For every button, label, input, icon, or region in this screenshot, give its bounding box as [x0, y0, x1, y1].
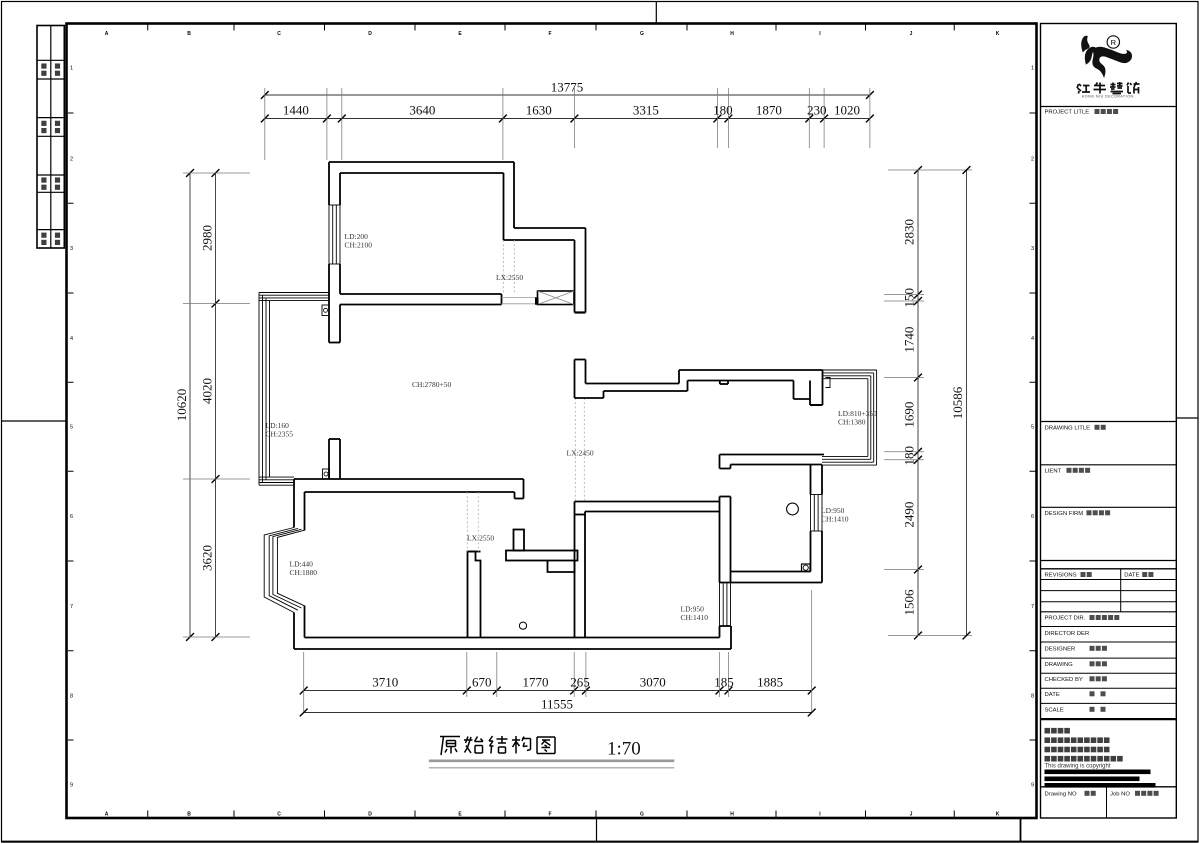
- svg-text:7: 7: [1031, 604, 1034, 610]
- svg-text:CH:1380: CH:1380: [838, 418, 866, 427]
- svg-text:H: H: [730, 31, 734, 37]
- svg-text:K: K: [996, 31, 1000, 37]
- svg-text:1506: 1506: [902, 589, 917, 616]
- svg-text:LX:2550: LX:2550: [496, 273, 523, 282]
- svg-text:3070: 3070: [640, 675, 666, 690]
- svg-text:HONG NIU DECORATION: HONG NIU DECORATION: [1082, 95, 1134, 99]
- svg-text:4: 4: [70, 336, 73, 342]
- svg-text:F: F: [548, 812, 551, 818]
- svg-text:9: 9: [70, 783, 73, 789]
- svg-text:G: G: [640, 812, 644, 818]
- svg-text:G: G: [640, 31, 644, 37]
- svg-text:1770: 1770: [523, 675, 549, 690]
- svg-text:DESIGNER: DESIGNER: [1045, 646, 1076, 652]
- svg-text:2: 2: [1031, 157, 1034, 163]
- svg-text:K: K: [996, 812, 1000, 818]
- svg-text:10620: 10620: [174, 389, 189, 422]
- svg-text:5: 5: [70, 425, 73, 431]
- svg-text:REVISIONS: REVISIONS: [1045, 573, 1077, 579]
- svg-text:Job NO: Job NO: [1110, 791, 1130, 797]
- svg-text:185: 185: [714, 675, 734, 690]
- svg-text:180: 180: [902, 446, 917, 466]
- svg-text:6: 6: [70, 514, 73, 520]
- svg-text:A: A: [105, 31, 109, 37]
- svg-text:2490: 2490: [902, 502, 917, 528]
- svg-text:1:70: 1:70: [607, 739, 641, 760]
- svg-text:C: C: [277, 31, 281, 37]
- svg-text:C: C: [277, 812, 281, 818]
- svg-text:1870: 1870: [756, 103, 782, 118]
- svg-text:1740: 1740: [902, 327, 917, 353]
- svg-text:SCALE: SCALE: [1045, 707, 1064, 713]
- svg-text:B: B: [187, 812, 191, 818]
- svg-text:11555: 11555: [541, 697, 573, 712]
- svg-text:3: 3: [1031, 246, 1034, 252]
- svg-text:LIENT: LIENT: [1045, 468, 1062, 474]
- svg-text:8: 8: [70, 694, 73, 700]
- svg-text:9: 9: [1031, 783, 1034, 789]
- svg-text:F: F: [548, 31, 551, 37]
- svg-text:J: J: [910, 31, 913, 37]
- svg-text:CH:2780+50: CH:2780+50: [412, 380, 451, 389]
- svg-text:DATE: DATE: [1045, 692, 1060, 698]
- svg-text:13775: 13775: [551, 80, 584, 95]
- svg-text:DRAWING: DRAWING: [1045, 662, 1074, 668]
- svg-text:CH:2100: CH:2100: [345, 241, 373, 250]
- svg-text:DATE: DATE: [1124, 573, 1139, 579]
- svg-text:CH:1880: CH:1880: [290, 568, 318, 577]
- svg-text:4020: 4020: [200, 378, 215, 404]
- svg-text:3315: 3315: [633, 103, 659, 118]
- svg-text:180: 180: [713, 103, 733, 118]
- svg-text:1440: 1440: [283, 103, 309, 118]
- svg-text:2: 2: [70, 157, 73, 163]
- svg-text:230: 230: [807, 103, 827, 118]
- svg-text:LX:2450: LX:2450: [567, 449, 594, 458]
- svg-text:3: 3: [70, 246, 73, 252]
- svg-text:1690: 1690: [902, 402, 917, 428]
- svg-text:1885: 1885: [757, 675, 783, 690]
- svg-text:R: R: [1111, 38, 1117, 47]
- svg-text:D: D: [368, 812, 372, 818]
- svg-text:LX:2550: LX:2550: [467, 534, 494, 543]
- svg-text:7: 7: [70, 604, 73, 610]
- svg-text:3640: 3640: [409, 103, 435, 118]
- svg-text:265: 265: [570, 675, 590, 690]
- svg-text:DRAWING LITLE: DRAWING LITLE: [1045, 425, 1091, 431]
- svg-text:CH:2355: CH:2355: [266, 430, 294, 439]
- svg-text:1020: 1020: [834, 103, 860, 118]
- svg-text:DESIGN FIRM: DESIGN FIRM: [1045, 511, 1084, 517]
- svg-text:CH:1410: CH:1410: [681, 613, 709, 622]
- svg-text:10586: 10586: [950, 386, 965, 419]
- svg-text:2980: 2980: [200, 225, 215, 251]
- svg-text:Drawing NO: Drawing NO: [1045, 791, 1077, 797]
- svg-text:This drawing is copyright: This drawing is copyright: [1045, 763, 1111, 769]
- svg-text:2830: 2830: [902, 219, 917, 245]
- svg-text:PROJECT LITLE: PROJECT LITLE: [1045, 110, 1090, 116]
- svg-text:3620: 3620: [200, 545, 215, 571]
- svg-text:D: D: [368, 31, 372, 37]
- svg-text:J: J: [910, 812, 913, 818]
- svg-text:PROJECT DIR.: PROJECT DIR.: [1045, 616, 1086, 622]
- svg-text:5: 5: [1031, 425, 1034, 431]
- svg-text:B: B: [187, 31, 191, 37]
- svg-text:1: 1: [1031, 66, 1034, 72]
- svg-text:A: A: [105, 812, 109, 818]
- svg-text:8: 8: [1031, 694, 1034, 700]
- svg-text:CHECKED BY: CHECKED BY: [1045, 677, 1083, 683]
- svg-text:150: 150: [902, 288, 917, 308]
- svg-text:DIRECTOR DER: DIRECTOR DER: [1045, 631, 1090, 637]
- svg-text:4: 4: [1031, 336, 1034, 342]
- svg-text:670: 670: [472, 675, 492, 690]
- svg-text:H: H: [730, 812, 734, 818]
- svg-text:CH:1410: CH:1410: [821, 515, 849, 524]
- svg-text:1630: 1630: [526, 103, 552, 118]
- svg-text:3710: 3710: [372, 675, 398, 690]
- svg-text:1: 1: [70, 66, 73, 72]
- svg-text:6: 6: [1031, 514, 1034, 520]
